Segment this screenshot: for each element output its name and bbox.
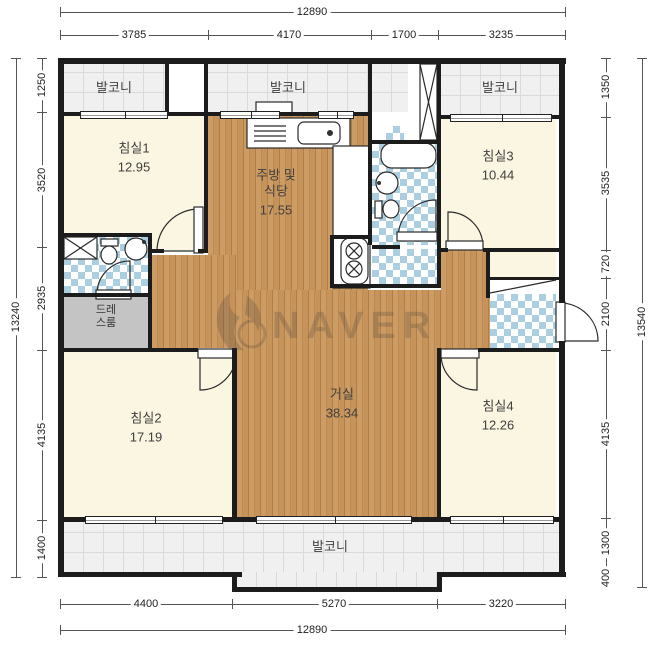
dimension-value: 4135 xyxy=(36,420,48,450)
dimension-value: 1300 xyxy=(600,528,612,558)
dimension-tick xyxy=(37,350,47,351)
dimension-value: 13240 xyxy=(10,299,22,336)
dimension-tick xyxy=(371,30,372,40)
dimension-value: 3520 xyxy=(36,165,48,195)
dimension-tick xyxy=(601,58,611,59)
dimension-tick xyxy=(232,599,233,609)
dimension-value: 4170 xyxy=(274,29,304,41)
dimension-tick xyxy=(438,30,439,40)
dimension-value: 5270 xyxy=(319,598,349,610)
dimension-tick xyxy=(60,7,61,17)
dimension-value: 4135 xyxy=(600,419,612,449)
dimension-value: 4400 xyxy=(131,598,161,610)
dimension-value: 1250 xyxy=(36,70,48,100)
dimension-tick xyxy=(37,112,47,113)
dimension-tick xyxy=(60,599,61,609)
dimension-tick xyxy=(565,599,566,609)
dimension-value: 720 xyxy=(600,252,612,276)
dimension-tick xyxy=(637,587,647,588)
dimension-value: 2935 xyxy=(36,283,48,313)
dimension-tick xyxy=(437,599,438,609)
dimension-value: 1400 xyxy=(36,533,48,563)
dimension-tick xyxy=(565,30,566,40)
dimension-tick xyxy=(601,350,611,351)
dimension-tick xyxy=(208,30,209,40)
dimension-tick xyxy=(565,625,566,635)
dimension-tick xyxy=(37,520,47,521)
floorplan-canvas: 발코니발코니발코니침실112.95주방 및식당17.55침실310.44드레스룸… xyxy=(0,0,654,653)
dimension-tick xyxy=(601,278,611,279)
dimension-tick xyxy=(637,58,647,59)
dimension-value: 1700 xyxy=(389,29,419,41)
dimension-tick xyxy=(60,625,61,635)
naver-watermark: NAVER xyxy=(272,305,437,348)
dimension-tick xyxy=(11,58,21,59)
dimension-tick xyxy=(37,58,47,59)
dimension-tick xyxy=(37,577,47,578)
dimension-tick xyxy=(37,247,47,248)
dimension-value: 2100 xyxy=(600,299,612,329)
dimension-value: 3535 xyxy=(600,168,612,198)
dimension-value: 3785 xyxy=(119,29,149,41)
dimension-tick xyxy=(11,577,21,578)
dimension-tick xyxy=(60,30,61,40)
dimension-value: 12890 xyxy=(294,6,331,18)
dimension-tick xyxy=(565,7,566,17)
dimension-value: 3235 xyxy=(486,29,516,41)
dimension-value: 3220 xyxy=(486,598,516,610)
dimension-value: 400 xyxy=(600,566,612,590)
dimension-tick xyxy=(601,518,611,519)
dimension-tick xyxy=(601,117,611,118)
dimension-line xyxy=(42,58,43,577)
dimension-value: 12890 xyxy=(294,624,331,636)
dimension-value: 13540 xyxy=(636,304,648,341)
dimension-value: 1350 xyxy=(600,72,612,102)
